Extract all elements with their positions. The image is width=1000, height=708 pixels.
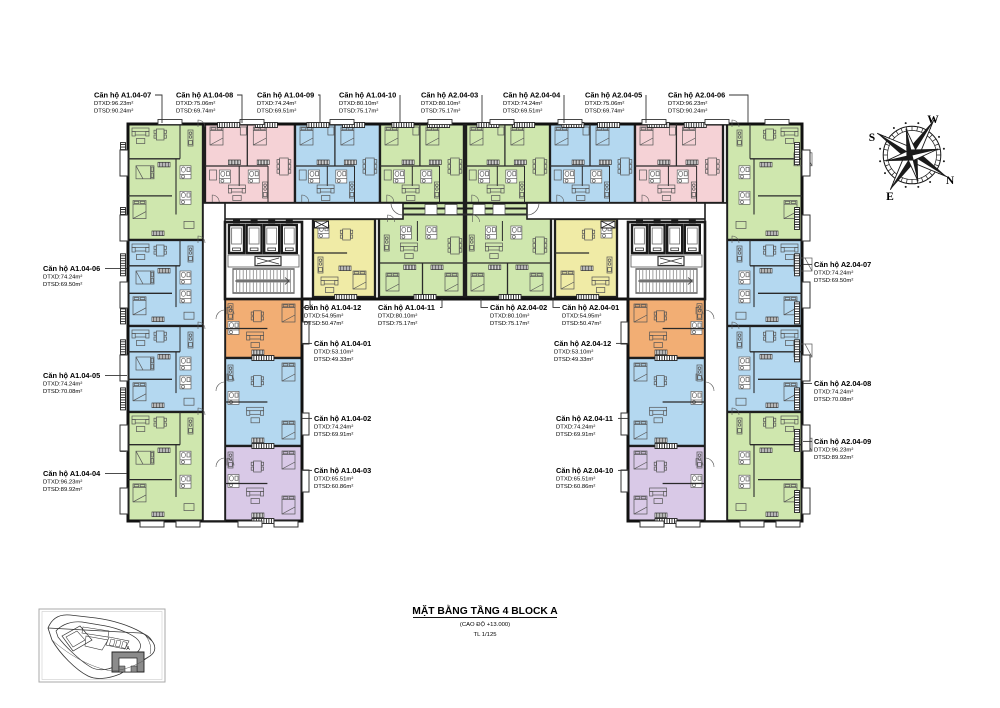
svg-text:DTXD:96.23m²: DTXD:96.23m²	[814, 448, 853, 454]
svg-text:DTSD:70.08m²: DTSD:70.08m²	[814, 397, 853, 403]
svg-text:Căn hộ A1.04-01: Căn hộ A1.04-01	[314, 339, 371, 348]
svg-text:DTXD:74.24m²: DTXD:74.24m²	[43, 382, 82, 388]
svg-text:DTSD:70.08m²: DTSD:70.08m²	[43, 389, 82, 395]
svg-text:DTSD:60.86m²: DTSD:60.86m²	[314, 484, 353, 490]
svg-text:DTXD:53.10m²: DTXD:53.10m²	[554, 350, 593, 356]
svg-text:Căn hộ A2.04-04: Căn hộ A2.04-04	[503, 91, 561, 100]
svg-text:DTXD:74.24m²: DTXD:74.24m²	[814, 271, 853, 277]
svg-text:Căn hộ A1.04-04: Căn hộ A1.04-04	[43, 469, 101, 478]
svg-text:S: S	[869, 132, 875, 144]
svg-text:Căn hộ A1.04-09: Căn hộ A1.04-09	[257, 91, 314, 100]
svg-text:DTXD:54.95m²: DTXD:54.95m²	[562, 314, 601, 320]
svg-text:Căn hộ A1.04-08: Căn hộ A1.04-08	[176, 91, 233, 100]
svg-text:(CAO ĐỘ +13.000): (CAO ĐỘ +13.000)	[460, 621, 510, 628]
svg-text:DTSD:50.47m²: DTSD:50.47m²	[304, 321, 343, 327]
svg-text:DTXD:80.10m²: DTXD:80.10m²	[421, 101, 460, 107]
svg-text:DTXD:65.51m²: DTXD:65.51m²	[314, 477, 353, 483]
svg-text:DTSD:49.33m²: DTSD:49.33m²	[554, 357, 593, 363]
svg-text:DTSD:69.51m²: DTSD:69.51m²	[503, 109, 542, 115]
svg-text:Căn hộ A1.04-12: Căn hộ A1.04-12	[304, 303, 361, 312]
svg-text:Căn hộ A1.04-06: Căn hộ A1.04-06	[43, 264, 100, 273]
svg-text:DTXD:74.24m²: DTXD:74.24m²	[556, 425, 595, 431]
svg-text:DTSD:75.17m²: DTSD:75.17m²	[378, 321, 417, 327]
svg-text:DTXD:80.10m²: DTXD:80.10m²	[490, 314, 529, 320]
svg-text:DTXD:74.24m²: DTXD:74.24m²	[43, 275, 82, 281]
svg-text:DTXD:96.23m²: DTXD:96.23m²	[668, 101, 707, 107]
svg-text:DTXD:80.10m²: DTXD:80.10m²	[339, 101, 378, 107]
svg-text:DTSD:50.47m²: DTSD:50.47m²	[562, 321, 601, 327]
svg-text:DTXD:53.10m²: DTXD:53.10m²	[314, 350, 353, 356]
svg-text:Căn hộ A2.04-07: Căn hộ A2.04-07	[814, 260, 871, 269]
svg-text:Căn hộ A2.04-12: Căn hộ A2.04-12	[554, 339, 611, 348]
svg-text:DTXD:80.10m²: DTXD:80.10m²	[378, 314, 417, 320]
svg-text:DTSD:75.17m²: DTSD:75.17m²	[490, 321, 529, 327]
svg-text:DTSD:75.17m²: DTSD:75.17m²	[421, 109, 460, 115]
svg-text:Căn hộ A2.04-11: Căn hộ A2.04-11	[556, 414, 613, 423]
svg-text:DTSD:90.24m²: DTSD:90.24m²	[94, 109, 133, 115]
svg-text:Căn hộ A2.04-01: Căn hộ A2.04-01	[562, 303, 619, 312]
svg-text:DTXD:65.51m²: DTXD:65.51m²	[556, 477, 595, 483]
svg-text:Căn hộ A1.04-05: Căn hộ A1.04-05	[43, 371, 100, 380]
svg-text:Căn hộ A2.04-10: Căn hộ A2.04-10	[556, 466, 613, 475]
svg-text:Căn hộ A2.04-03: Căn hộ A2.04-03	[421, 91, 478, 100]
svg-text:DTSD:69.91m²: DTSD:69.91m²	[314, 432, 353, 438]
svg-text:Căn hộ A2.04-06: Căn hộ A2.04-06	[668, 91, 725, 100]
svg-text:DTSD:69.50m²: DTSD:69.50m²	[814, 278, 853, 284]
svg-text:DTXD:96.23m²: DTXD:96.23m²	[94, 101, 133, 107]
svg-text:DTXD:74.24m²: DTXD:74.24m²	[503, 101, 542, 107]
svg-text:DTSD:90.24m²: DTSD:90.24m²	[668, 109, 707, 115]
svg-text:DTXD:75.06m²: DTXD:75.06m²	[176, 101, 215, 107]
svg-text:Căn hộ A2.04-02: Căn hộ A2.04-02	[490, 303, 547, 312]
svg-text:DTXD:75.06m²: DTXD:75.06m²	[585, 101, 624, 107]
svg-text:DTSD:89.92m²: DTSD:89.92m²	[814, 455, 853, 461]
svg-text:Căn hộ A2.04-08: Căn hộ A2.04-08	[814, 379, 871, 388]
svg-text:DTSD:49.33m²: DTSD:49.33m²	[314, 357, 353, 363]
svg-text:DTXD:96.23m²: DTXD:96.23m²	[43, 480, 82, 486]
svg-text:DTSD:69.91m²: DTSD:69.91m²	[556, 432, 595, 438]
svg-text:TL 1/125: TL 1/125	[473, 632, 497, 638]
svg-text:Căn hộ A2.04-05: Căn hộ A2.04-05	[585, 91, 642, 100]
svg-text:E: E	[886, 191, 894, 203]
svg-text:DTSD:69.50m²: DTSD:69.50m²	[43, 282, 82, 288]
svg-text:DTSD:69.74m²: DTSD:69.74m²	[585, 109, 624, 115]
svg-text:Căn hộ A2.04-09: Căn hộ A2.04-09	[814, 437, 871, 446]
svg-text:W: W	[927, 114, 939, 126]
svg-text:DTSD:75.17m²: DTSD:75.17m²	[339, 109, 378, 115]
svg-text:DTSD:60.86m²: DTSD:60.86m²	[556, 484, 595, 490]
svg-text:DTSD:89.92m²: DTSD:89.92m²	[43, 487, 82, 493]
svg-text:DTXD:74.24m²: DTXD:74.24m²	[314, 425, 353, 431]
svg-text:N: N	[946, 175, 955, 187]
svg-text:DTSD:69.51m²: DTSD:69.51m²	[257, 109, 296, 115]
svg-text:Căn hộ A1.04-03: Căn hộ A1.04-03	[314, 466, 371, 475]
svg-text:Căn hộ A1.04-07: Căn hộ A1.04-07	[94, 91, 151, 100]
svg-text:DTSD:69.74m²: DTSD:69.74m²	[176, 109, 215, 115]
svg-text:Căn hộ A1.04-10: Căn hộ A1.04-10	[339, 91, 396, 100]
svg-text:Căn hộ A1.04-11: Căn hộ A1.04-11	[378, 303, 435, 312]
svg-text:DTXD:54.95m²: DTXD:54.95m²	[304, 314, 343, 320]
svg-text:DTXD:74.24m²: DTXD:74.24m²	[257, 101, 296, 107]
svg-text:DTXD:74.24m²: DTXD:74.24m²	[814, 390, 853, 396]
svg-text:MẶT BẰNG TẦNG 4 BLOCK A: MẶT BẰNG TẦNG 4 BLOCK A	[412, 604, 558, 617]
svg-text:Căn hộ A1.04-02: Căn hộ A1.04-02	[314, 414, 371, 423]
